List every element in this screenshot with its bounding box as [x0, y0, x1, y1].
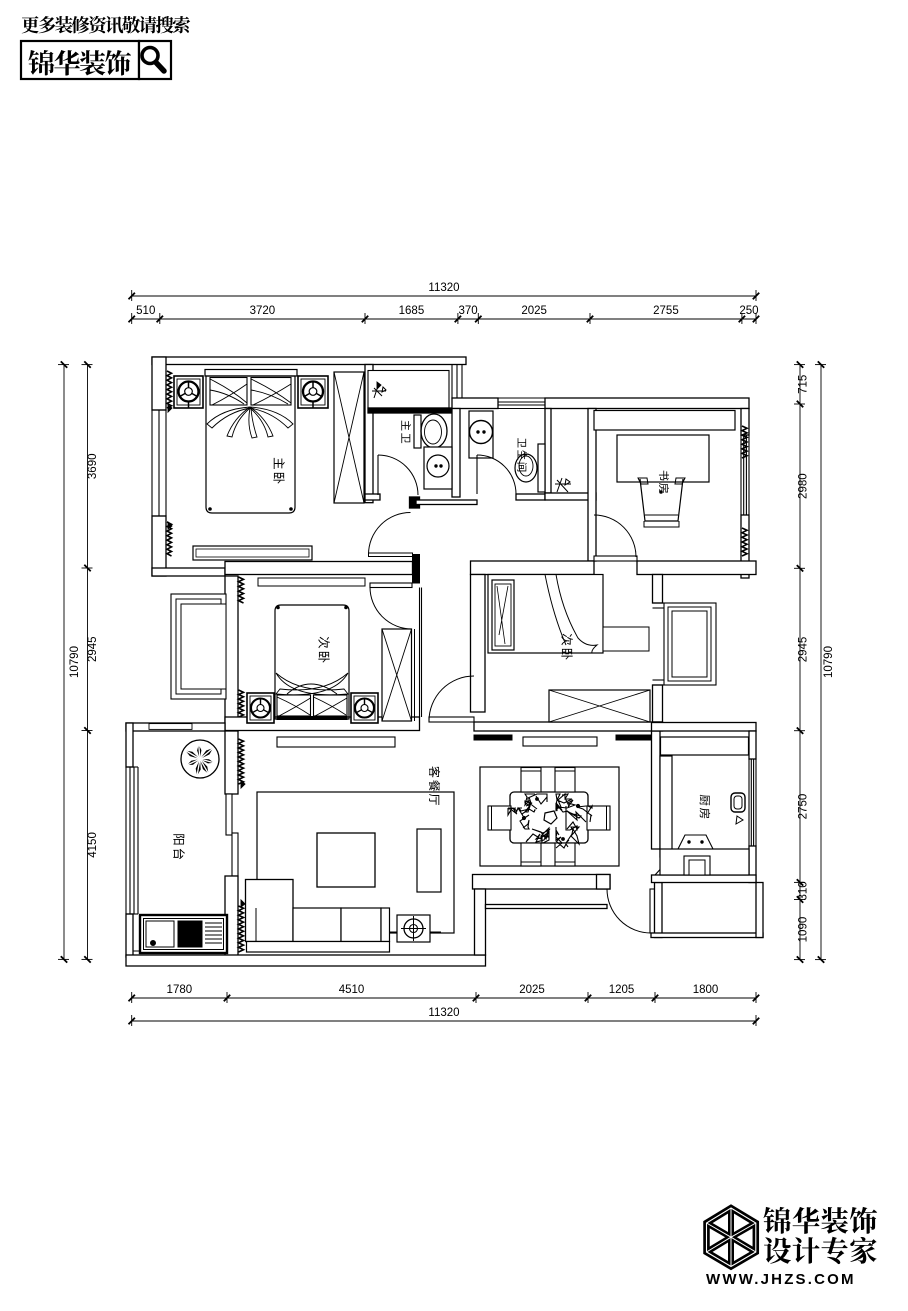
svg-text:2755: 2755 [653, 305, 679, 317]
svg-text:3720: 3720 [250, 305, 276, 317]
svg-text:1685: 1685 [399, 305, 425, 317]
svg-text:4510: 4510 [339, 984, 365, 996]
svg-text:2025: 2025 [521, 305, 547, 317]
svg-text:715: 715 [798, 375, 810, 394]
svg-text:11320: 11320 [428, 282, 459, 294]
svg-text:4150: 4150 [87, 832, 99, 858]
svg-text:370: 370 [459, 305, 478, 317]
svg-text:510: 510 [136, 305, 155, 317]
svg-text:2980: 2980 [798, 473, 810, 499]
svg-text:2945: 2945 [798, 637, 810, 663]
svg-text:1800: 1800 [693, 984, 719, 996]
svg-text:2025: 2025 [519, 984, 545, 996]
svg-text:11320: 11320 [428, 1007, 459, 1019]
svg-text:2945: 2945 [87, 636, 99, 662]
svg-text:1780: 1780 [167, 984, 193, 996]
svg-text:10790: 10790 [69, 646, 81, 678]
svg-text:10790: 10790 [823, 646, 835, 678]
svg-text:WWW.JHZS.COM: WWW.JHZS.COM [706, 1271, 856, 1288]
svg-text:2750: 2750 [798, 794, 810, 820]
svg-text:3690: 3690 [87, 454, 99, 480]
svg-text:1205: 1205 [609, 984, 635, 996]
svg-text:1090: 1090 [798, 917, 810, 943]
svg-text:250: 250 [739, 305, 758, 317]
svg-text:310: 310 [798, 881, 810, 900]
